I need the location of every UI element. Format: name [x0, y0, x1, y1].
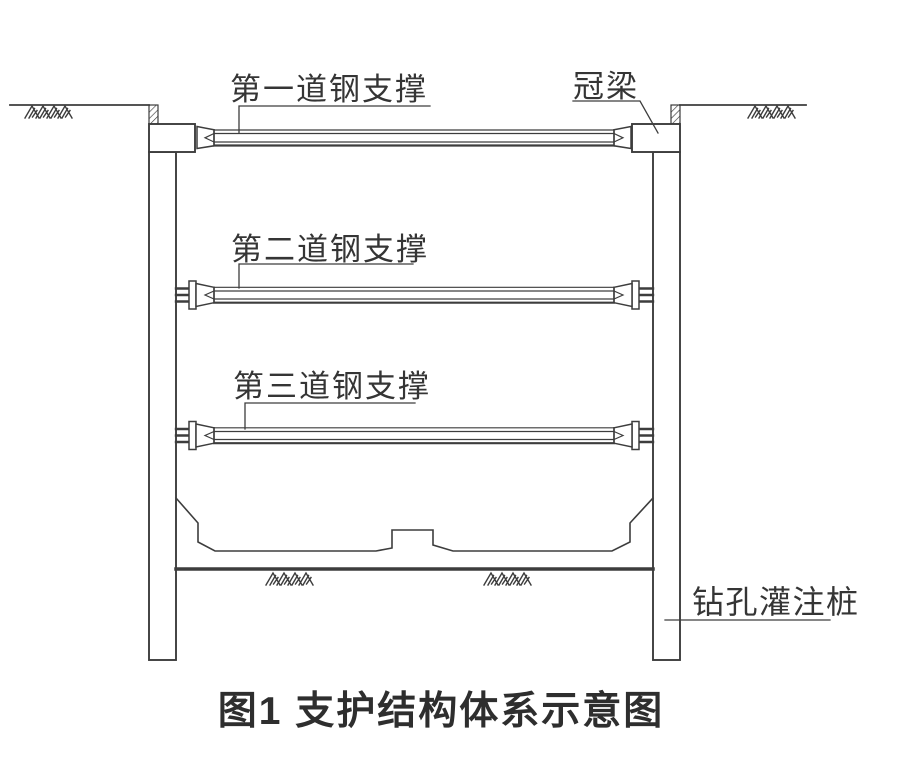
ground-surface-right [680, 105, 806, 118]
strut-bolts [639, 289, 653, 302]
figure-container: 第一道钢支撑 第二道钢支撑 第三道钢支撑 冠梁 钻孔灌注桩 图1 支护结构体系示… [0, 0, 905, 766]
strut-bolts [639, 429, 653, 442]
strut-bearing-plate [632, 281, 639, 309]
steel-strut-3 [176, 422, 653, 450]
label-strut-1: 第一道钢支撑 [230, 72, 428, 107]
soil-hatch-icon [748, 106, 795, 118]
soil-hatch-icon [25, 106, 72, 118]
strut-bearing-plate [189, 422, 196, 450]
support-structure-diagram: 第一道钢支撑 第二道钢支撑 第三道钢支撑 冠梁 钻孔灌注桩 图1 支护结构体系示… [0, 0, 905, 766]
leader-strut-1 [239, 106, 430, 133]
soil-hatch-icon [484, 573, 531, 585]
label-strut-2: 第二道钢支撑 [231, 232, 429, 267]
strut-bolts [176, 429, 189, 442]
figure-caption: 图1 支护结构体系示意图 [218, 690, 665, 733]
pile-right [653, 152, 680, 660]
soil-hatch-icon [266, 573, 313, 585]
soil-block-right [671, 105, 680, 124]
steel-strut-1 [197, 127, 631, 149]
label-strut-3: 第三道钢支撑 [233, 369, 431, 404]
leader-strut-3 [245, 403, 415, 429]
steel-strut-2 [176, 281, 653, 309]
strut-bearing-plate [632, 422, 639, 450]
base-slab-profile [176, 498, 653, 551]
crown-beam-left [149, 124, 195, 152]
label-bored-pile: 钻孔灌注桩 [692, 584, 860, 620]
strut-bearing-plate [189, 281, 196, 309]
label-crown-beam: 冠梁 [573, 69, 639, 104]
ground-surface-left [10, 105, 149, 118]
pile-left [149, 152, 176, 660]
soil-block-left [149, 105, 158, 124]
leader-strut-2 [239, 264, 413, 288]
strut-bolts [176, 289, 189, 302]
